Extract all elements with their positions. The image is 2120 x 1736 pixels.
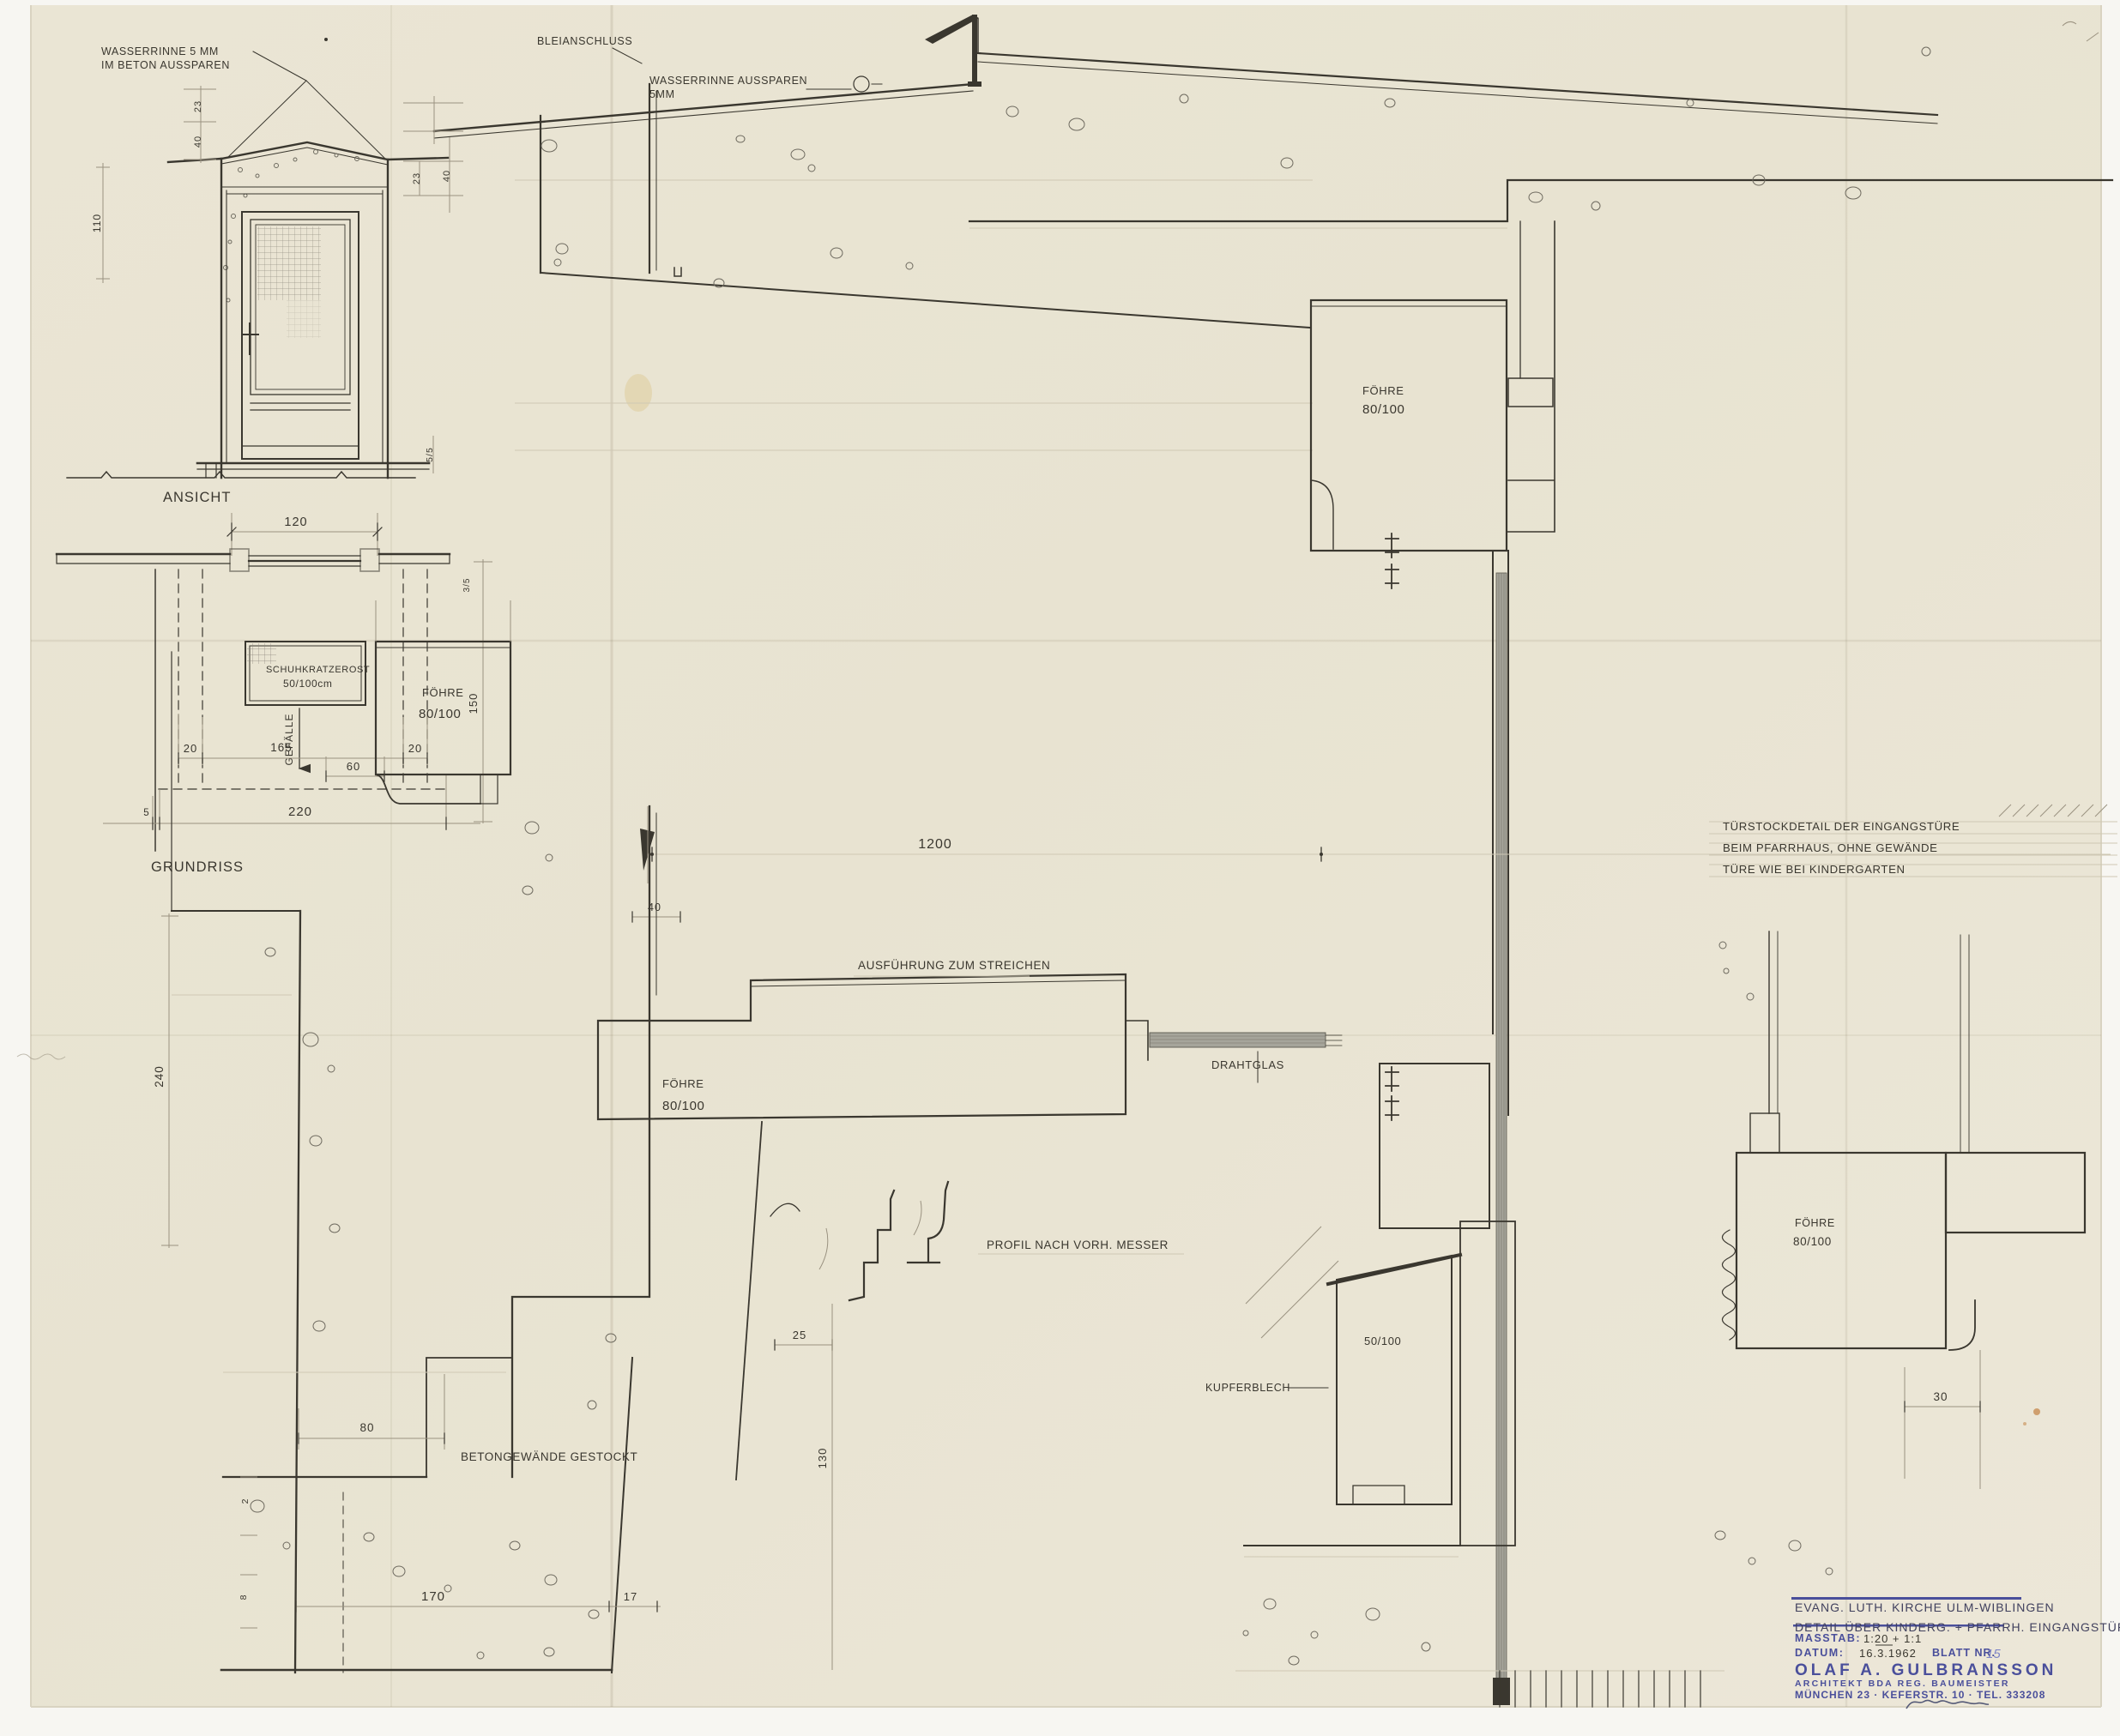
elevation-callout-line2: IM BETON AUSSPAREN (101, 59, 230, 71)
wood-size-jamb: 80/100 (419, 707, 461, 721)
bleianschluss-label: BLEIANSCHLUSS (537, 35, 632, 47)
note-line1: TÜRSTOCKDETAIL DER EINGANGSTÜRE (1723, 820, 1960, 833)
scanned-drawing-sheet: WASSERRINNE 5 MM IM BETON AUSSPAREN 23 (0, 0, 2120, 1736)
dim-8: 8 (239, 1594, 249, 1600)
copper-label: KUPFERBLECH (1205, 1382, 1290, 1394)
dim-17: 17 (624, 1590, 637, 1603)
architect-stamp-address: MÜNCHEN 23 · KEFERSTR. 10 · TEL. 333208 (1795, 1688, 2045, 1701)
glass-label: DRAHTGLAS (1211, 1058, 1284, 1071)
slope-label: GEFÄLLE (283, 713, 295, 765)
note-line2: BEIM PFARRHAUS, OHNE GEWÄNDE (1723, 841, 1938, 854)
dim-110: 110 (91, 214, 103, 232)
dim-1200: 1200 (918, 837, 952, 852)
dim-130: 130 (816, 1448, 829, 1469)
dim-23-section: 23 (412, 172, 422, 184)
dim-165: 165 (270, 741, 293, 754)
grate-label-line2: 50/100cm (283, 678, 333, 690)
paint-note-label: AUSFÜHRUNG ZUM STREICHEN (858, 959, 1050, 972)
dim-80: 80 (359, 1421, 374, 1434)
dim-30: 30 (1933, 1390, 1948, 1403)
grate-label-line1: SCHUHKRATZEROST (266, 665, 370, 675)
project-line1: EVANG. LUTH. KIRCHE ULM-WIBLINGEN (1795, 1600, 2055, 1614)
wood-label-right: FÖHRE (1795, 1217, 1835, 1229)
dim-2: 2 (240, 1498, 251, 1504)
elevation-title: ANSICHT (163, 490, 231, 505)
channel-foot (1493, 1678, 1510, 1705)
wire-mesh-glass (257, 226, 321, 300)
sheet-number-value: 15 (1986, 1647, 2001, 1661)
title-rule-top (1791, 1597, 2021, 1600)
dim-170: 170 (421, 1589, 445, 1604)
dim-20-right: 20 (408, 742, 422, 755)
dim-240: 240 (153, 1065, 166, 1088)
wood-size-head: 80/100 (1362, 402, 1404, 417)
grate-mesh (247, 643, 276, 664)
wood-label-beam: FÖHRE (662, 1077, 704, 1090)
scale-label: MASSTAB: (1795, 1632, 1861, 1644)
date-value: 16.3.1962 (1859, 1647, 1917, 1660)
wasserrinne-label-line2: 5MM (649, 88, 675, 100)
wood-size-right: 80/100 (1793, 1235, 1832, 1248)
dim-220: 220 (288, 805, 312, 819)
wood-label-jamb: FÖHRE (422, 686, 464, 699)
dim-150: 150 (467, 693, 480, 714)
dim-5-5: 5/5 (425, 447, 435, 462)
dim-40-elevation: 40 (193, 136, 203, 148)
dim-120: 120 (284, 515, 307, 529)
blueprint-canvas: WASSERRINNE 5 MM IM BETON AUSSPAREN 23 (0, 0, 2120, 1736)
dim-60: 60 (347, 760, 360, 773)
wasserrinne-label-line1: WASSERRINNE AUSSPAREN (649, 75, 807, 87)
dim-20-left: 20 (184, 742, 197, 755)
date-label: DATUM: (1795, 1647, 1844, 1659)
wood-size-sill: 50/100 (1364, 1335, 1401, 1347)
profile-note-label: PROFIL NACH VORH. MESSER (987, 1239, 1169, 1251)
note-line3: TÜRE WIE BEI KINDERGARTEN (1723, 863, 1906, 876)
concrete-note-label: BETONGEWÄNDE GESTOCKT (461, 1450, 637, 1463)
architect-stamp-name: OLAF A. GULBRANSSON (1795, 1661, 2057, 1679)
dim-5: 5 (143, 808, 149, 818)
wood-label-head: FÖHRE (1362, 384, 1404, 397)
elevation-callout-line1: WASSERRINNE 5 MM (101, 45, 219, 57)
wired-glass-horizontal (1150, 1033, 1326, 1047)
scale-value: 1:20 + 1:1 (1863, 1632, 1922, 1645)
dim-40-section: 40 (442, 170, 452, 182)
paper-sheet (31, 5, 2101, 1707)
wood-size-beam: 80/100 (662, 1099, 704, 1113)
architect-stamp-title: ARCHITEKT BDA REG. BAUMEISTER (1795, 1679, 2010, 1689)
dim-3-5: 3/5 (462, 578, 472, 593)
dim-23-elevation: 23 (193, 100, 203, 112)
dim-25: 25 (793, 1329, 806, 1341)
plan-title: GRUNDRISS (151, 859, 244, 875)
